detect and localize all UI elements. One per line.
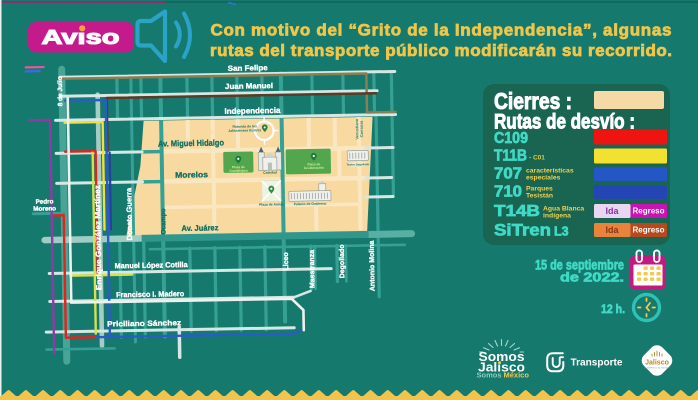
svg-text:Catedral: Catedral bbox=[263, 171, 277, 175]
svg-text:Transporte: Transporte bbox=[571, 357, 623, 369]
svg-text:Maestranza: Maestranza bbox=[309, 250, 317, 288]
svg-text:Teatro Degollado: Teatro Degollado bbox=[347, 162, 370, 166]
svg-text:707: 707 bbox=[494, 166, 522, 183]
svg-text:Liceo: Liceo bbox=[283, 252, 290, 270]
svg-text:Francisco I. Madero: Francisco I. Madero bbox=[116, 289, 185, 299]
svg-text:Jalisco: Jalisco bbox=[645, 360, 669, 367]
svg-text:Juan Manuel: Juan Manuel bbox=[225, 81, 273, 91]
svg-text:Degollado: Degollado bbox=[339, 244, 347, 278]
svg-text:Tesistán: Tesistán bbox=[526, 193, 553, 200]
svg-text:México: México bbox=[504, 371, 530, 380]
svg-text:Morelos: Morelos bbox=[175, 170, 209, 180]
svg-text:SiTren: SiTren bbox=[494, 222, 551, 240]
svg-text:Antonio Molina: Antonio Molina bbox=[369, 240, 377, 291]
svg-text:710: 710 bbox=[494, 184, 522, 201]
svg-text:la Liberación: la Liberación bbox=[304, 166, 324, 170]
svg-text:Moreno: Moreno bbox=[33, 205, 56, 212]
svg-text:Agua Blanca: Agua Blanca bbox=[543, 206, 584, 213]
svg-text:de 2022.: de 2022. bbox=[560, 270, 624, 285]
svg-text:Plaza de Armas: Plaza de Armas bbox=[259, 202, 284, 206]
svg-text:Carranza: Carranza bbox=[359, 120, 364, 138]
svg-text:Guadalajara: Guadalajara bbox=[229, 169, 248, 173]
svg-text:12 h.: 12 h. bbox=[601, 302, 625, 316]
svg-text:Palacio de Gobierno: Palacio de Gobierno bbox=[294, 202, 327, 207]
svg-text:Av. Juárez: Av. Juárez bbox=[181, 223, 218, 233]
svg-text:Jaliscienses Ilustres: Jaliscienses Ilustres bbox=[228, 128, 261, 133]
svg-text:Av. Miguel Hidalgo: Av. Miguel Hidalgo bbox=[158, 137, 224, 148]
svg-text:Regreso: Regreso bbox=[632, 226, 664, 235]
svg-text:Regreso: Regreso bbox=[632, 207, 664, 216]
svg-text:indígena: indígena bbox=[543, 213, 571, 220]
svg-text:Somos: Somos bbox=[476, 371, 501, 380]
svg-text:Donato Guerra: Donato Guerra bbox=[124, 187, 134, 240]
svg-text:San Felipe: San Felipe bbox=[228, 63, 268, 73]
svg-text:Priciliano Sánchez: Priciliano Sánchez bbox=[107, 318, 181, 328]
svg-text:8 de Julio: 8 de Julio bbox=[57, 76, 65, 106]
svg-text:Parques: Parques bbox=[526, 186, 553, 193]
svg-text:rutas del transporte público m: rutas del transporte público modificarán… bbox=[210, 41, 672, 60]
svg-text:Enrique González Martínez: Enrique González Martínez bbox=[93, 185, 104, 290]
svg-text:C109: C109 bbox=[494, 130, 528, 147]
svg-text:Ocampo: Ocampo bbox=[160, 208, 167, 234]
svg-text:T11B: T11B bbox=[494, 148, 527, 165]
svg-text:características: características bbox=[526, 168, 574, 175]
svg-text:Ida: Ida bbox=[605, 206, 619, 216]
svg-text:- C01: - C01 bbox=[529, 155, 545, 162]
svg-text:Con motivo del “Grito de la In: Con motivo del “Grito de la Independenci… bbox=[211, 21, 672, 40]
svg-text:T14B: T14B bbox=[494, 203, 540, 220]
svg-text:Manuel López Cotilla: Manuel López Cotilla bbox=[115, 260, 189, 270]
svg-text:especiales: especiales bbox=[526, 175, 561, 182]
svg-text:L3: L3 bbox=[554, 225, 569, 239]
svg-text:Independencia: Independencia bbox=[224, 106, 281, 116]
svg-text:Ida: Ida bbox=[605, 225, 619, 235]
svg-text:GOBIERNO DEL ESTADO: GOBIERNO DEL ESTADO bbox=[644, 367, 670, 370]
